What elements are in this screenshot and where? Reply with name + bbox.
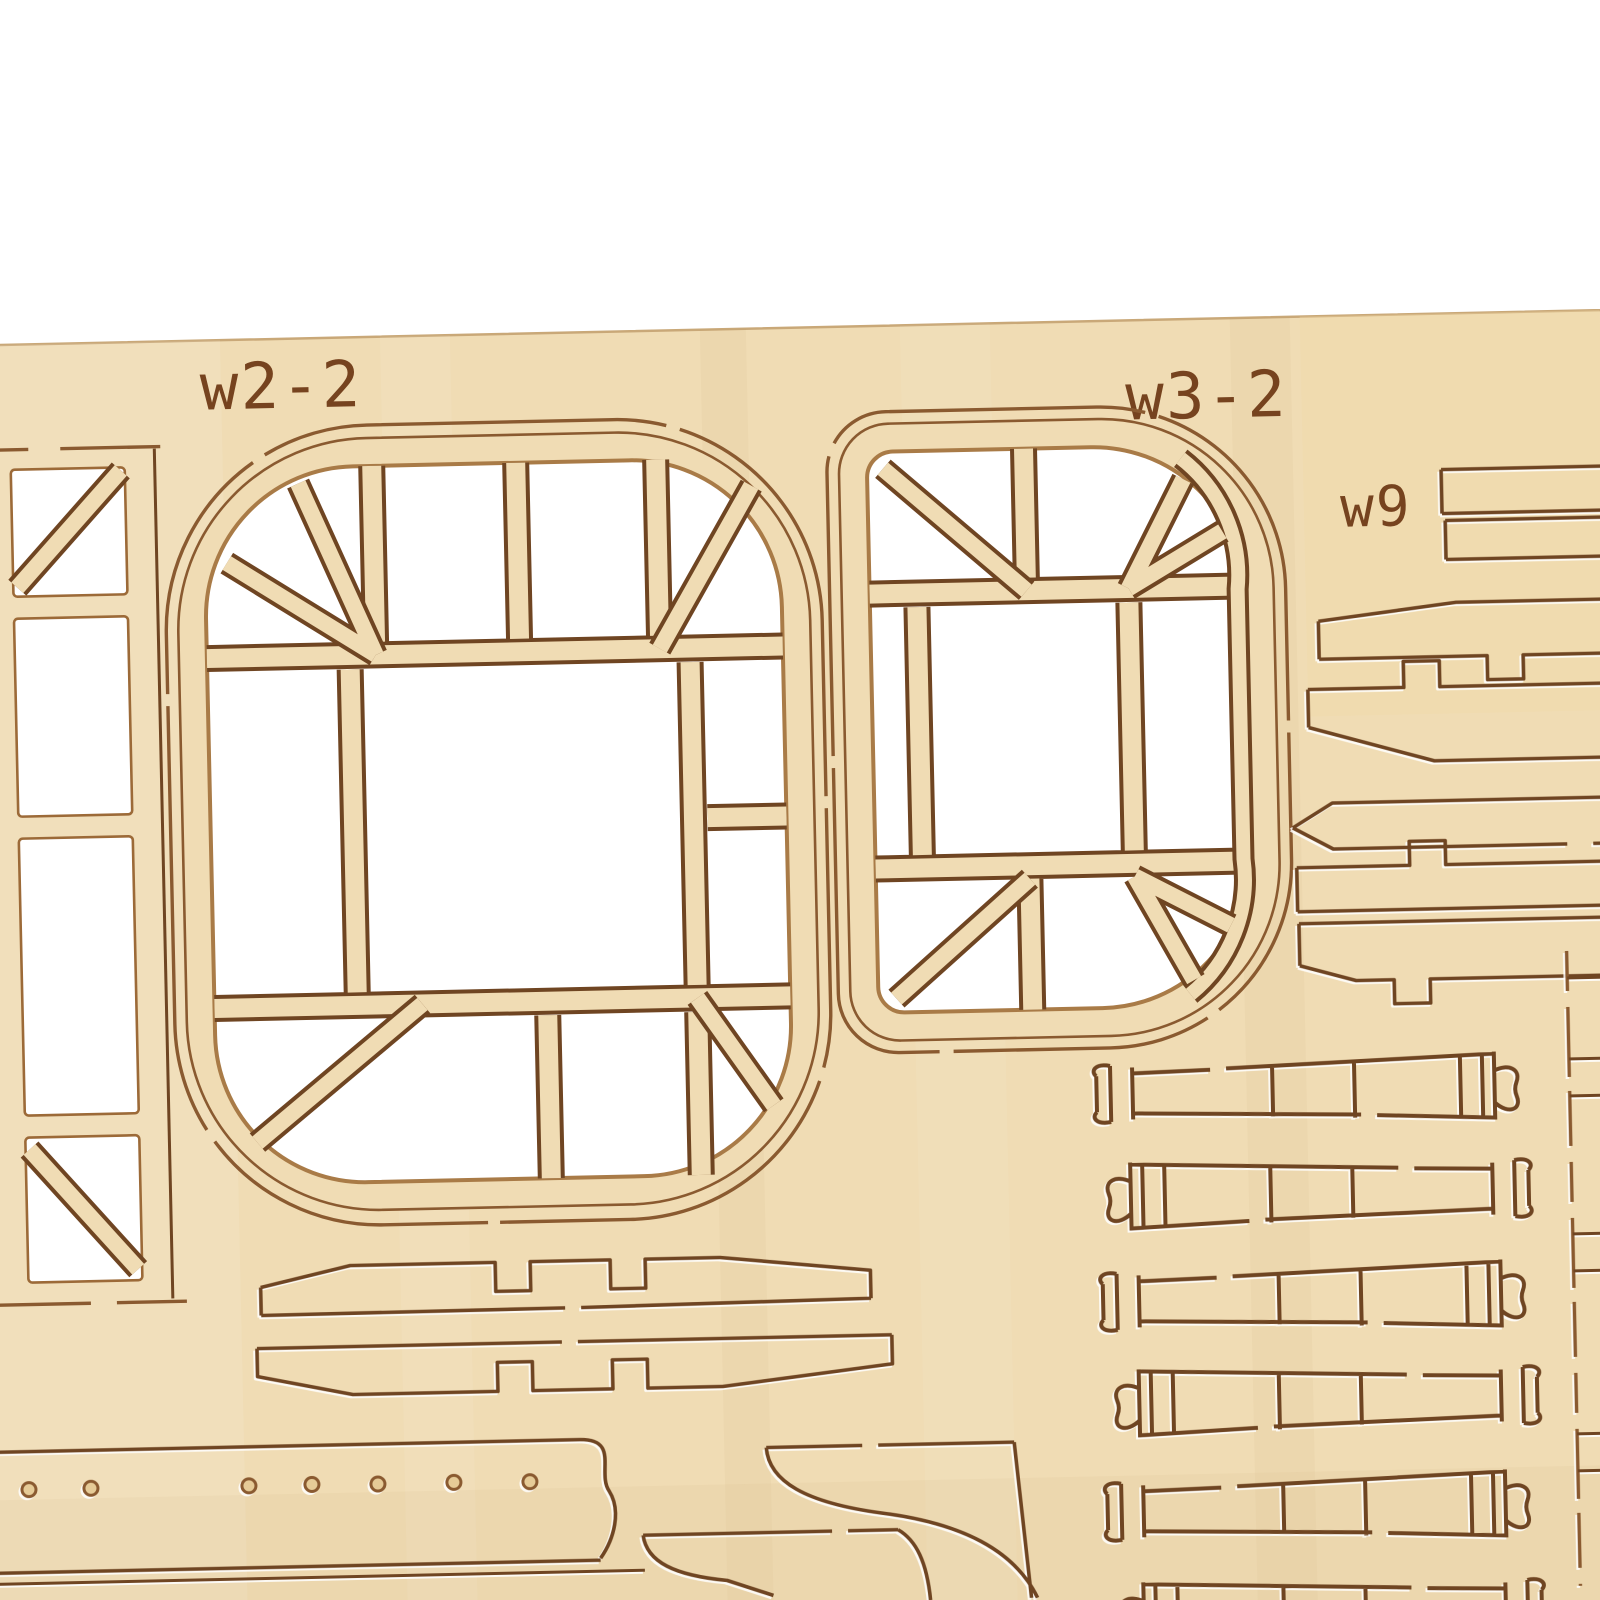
engraved-label-w9: w9 — [1339, 474, 1412, 541]
window-frame-w3-2 — [826, 403, 1296, 1054]
engraved-label-w3-2: w3-2 — [1125, 358, 1289, 436]
sheet-svg: w2-2 w3-2 w9 — [0, 0, 1600, 1600]
plywood-board-group: w2-2 w3-2 w9 — [0, 307, 1600, 1600]
pane-cutout — [19, 836, 139, 1115]
window-frame-w2-2 — [162, 415, 835, 1229]
engraved-label-w2-2: w2-2 — [199, 348, 363, 426]
photo-laser-cut-sheet: w2-2 w3-2 w9 — [0, 0, 1600, 1600]
pane-cutout — [14, 616, 132, 816]
